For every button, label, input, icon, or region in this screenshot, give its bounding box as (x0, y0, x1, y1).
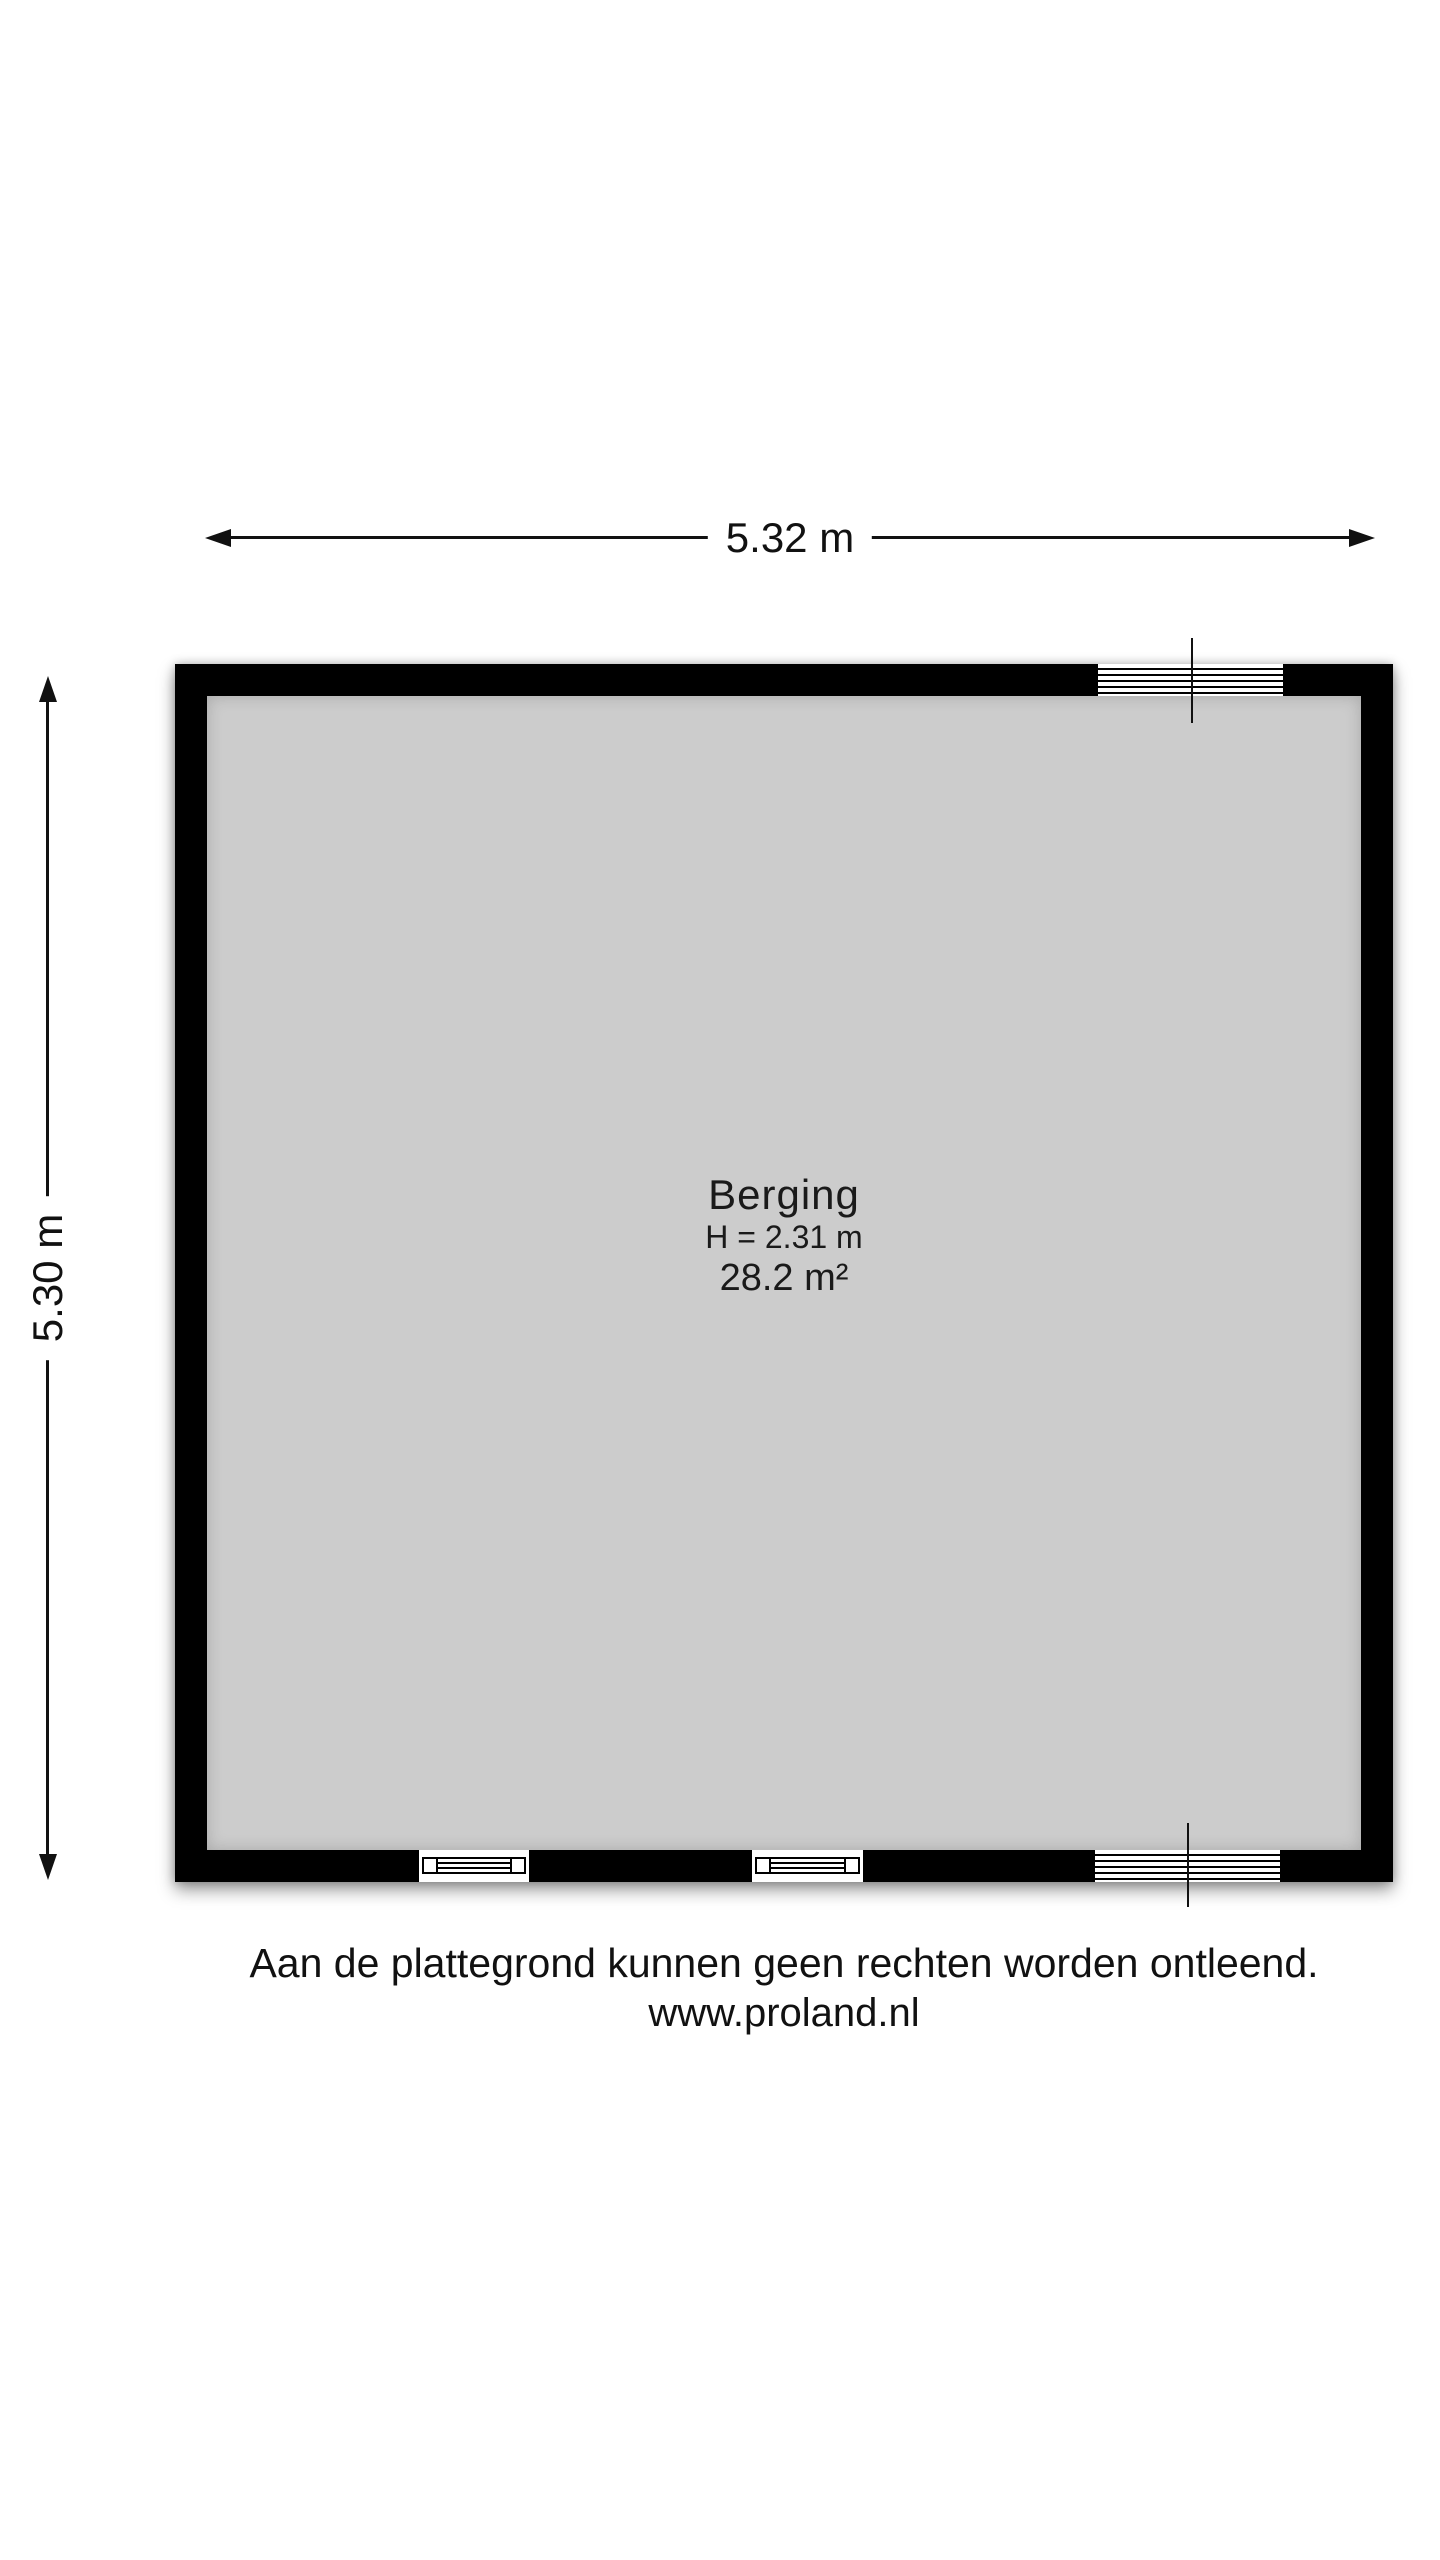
vent-frame (755, 1857, 860, 1874)
vent-bottom-center (752, 1850, 863, 1882)
arrow-down-icon (39, 1854, 57, 1880)
floorplan-canvas: 5.32 m 5.30 m (0, 0, 1440, 2560)
room-name: Berging (207, 1172, 1361, 1218)
room-ceiling-height: H = 2.31 m (207, 1218, 1361, 1256)
room-label: Berging H = 2.31 m 28.2 m² (207, 1172, 1361, 1300)
room-area: 28.2 m² (207, 1256, 1361, 1300)
dimension-height-label: 5.30 m (26, 1196, 70, 1360)
building-outline: Berging H = 2.31 m 28.2 m² (175, 664, 1393, 1882)
disclaimer-text: Aan de plattegrond kunnen geen rechten w… (175, 1938, 1393, 1988)
arrow-right-icon (1349, 529, 1375, 547)
dimension-width-label: 5.32 m (708, 516, 872, 560)
dimension-height: 5.30 m (26, 676, 70, 1880)
arrow-up-icon (39, 676, 57, 702)
window-top-center-tick (1191, 638, 1193, 723)
dimension-width: 5.32 m (205, 516, 1375, 560)
window-bottom-center-tick (1187, 1823, 1189, 1907)
arrow-left-icon (205, 529, 231, 547)
vent-frame (422, 1857, 526, 1874)
website-text: www.proland.nl (175, 1988, 1393, 2038)
vent-bottom-left (419, 1850, 529, 1882)
footer: Aan de plattegrond kunnen geen rechten w… (175, 1938, 1393, 2038)
